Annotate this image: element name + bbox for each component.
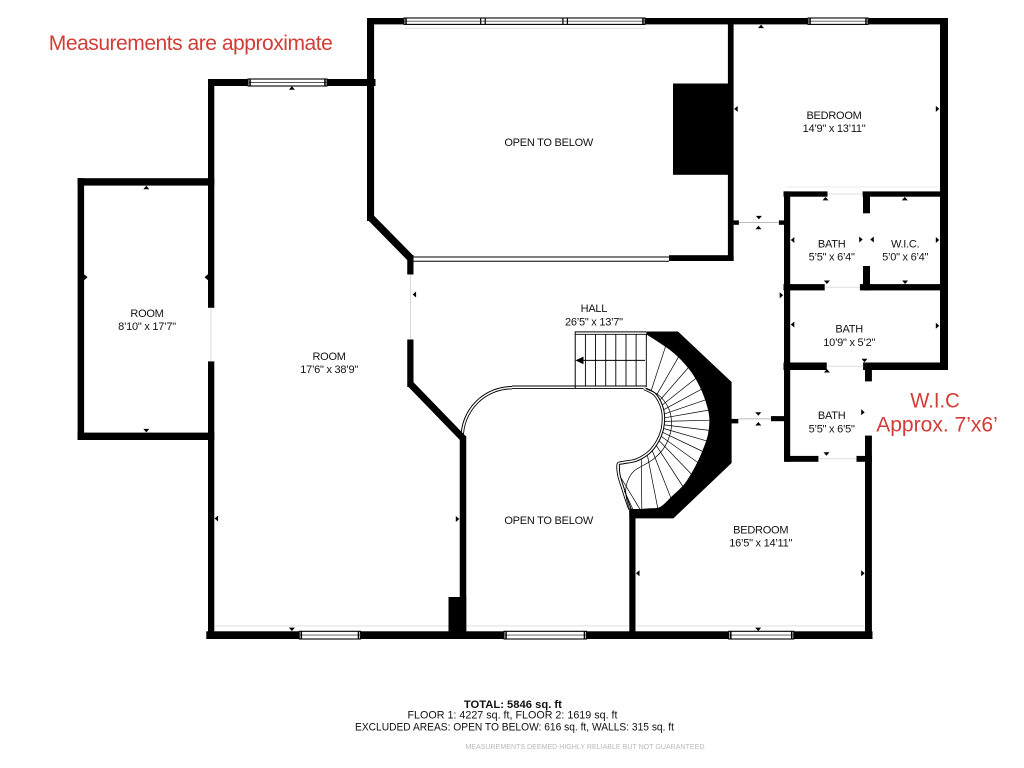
svg-text:OPEN TO BELOW: OPEN TO BELOW [504,515,594,527]
svg-text:ROOM: ROOM [312,351,345,363]
svg-text:5’0" x 6’4": 5’0" x 6’4" [882,251,928,263]
svg-text:BATH: BATH [835,324,863,336]
svg-text:FLOOR 1: 4227 sq. ft, FLOOR 2:: FLOOR 1: 4227 sq. ft, FLOOR 2: 1619 sq. … [408,709,618,721]
svg-text:16’5" x 14’11": 16’5" x 14’11" [729,538,792,550]
svg-text:26’5" x 13’7": 26’5" x 13’7" [565,316,623,328]
svg-text:ROOM: ROOM [130,308,163,320]
svg-text:8’10" x 17’7": 8’10" x 17’7" [118,321,176,333]
svg-text:W.I.C.: W.I.C. [891,238,920,250]
svg-text:BEDROOM: BEDROOM [733,524,788,536]
svg-text:MEASUREMENTS DEEMED HIGHLY REL: MEASUREMENTS DEEMED HIGHLY RELIABLE BUT … [465,742,706,751]
svg-text:5’5" x 6’4": 5’5" x 6’4" [809,251,855,263]
svg-text:BEDROOM: BEDROOM [806,110,861,122]
svg-text:BATH: BATH [818,238,846,250]
svg-text:OPEN TO BELOW: OPEN TO BELOW [504,137,594,149]
svg-text:17’6" x 38’9": 17’6" x 38’9" [300,364,358,376]
svg-text:BATH: BATH [818,410,846,422]
svg-text:14’9" x 13’11": 14’9" x 13’11" [803,123,866,135]
svg-text:Approx. 7’x6’: Approx. 7’x6’ [876,412,998,436]
svg-text:HALL: HALL [581,303,608,315]
svg-text:EXCLUDED AREAS: OPEN TO BELOW:: EXCLUDED AREAS: OPEN TO BELOW: 616 sq. f… [355,722,674,734]
svg-text:W.I.C: W.I.C [910,388,960,412]
svg-text:10’9" x 5’2": 10’9" x 5’2" [823,337,875,349]
svg-text:5’5" x 6’5": 5’5" x 6’5" [809,423,855,435]
svg-text:Measurements are approximate: Measurements are approximate [49,31,333,55]
